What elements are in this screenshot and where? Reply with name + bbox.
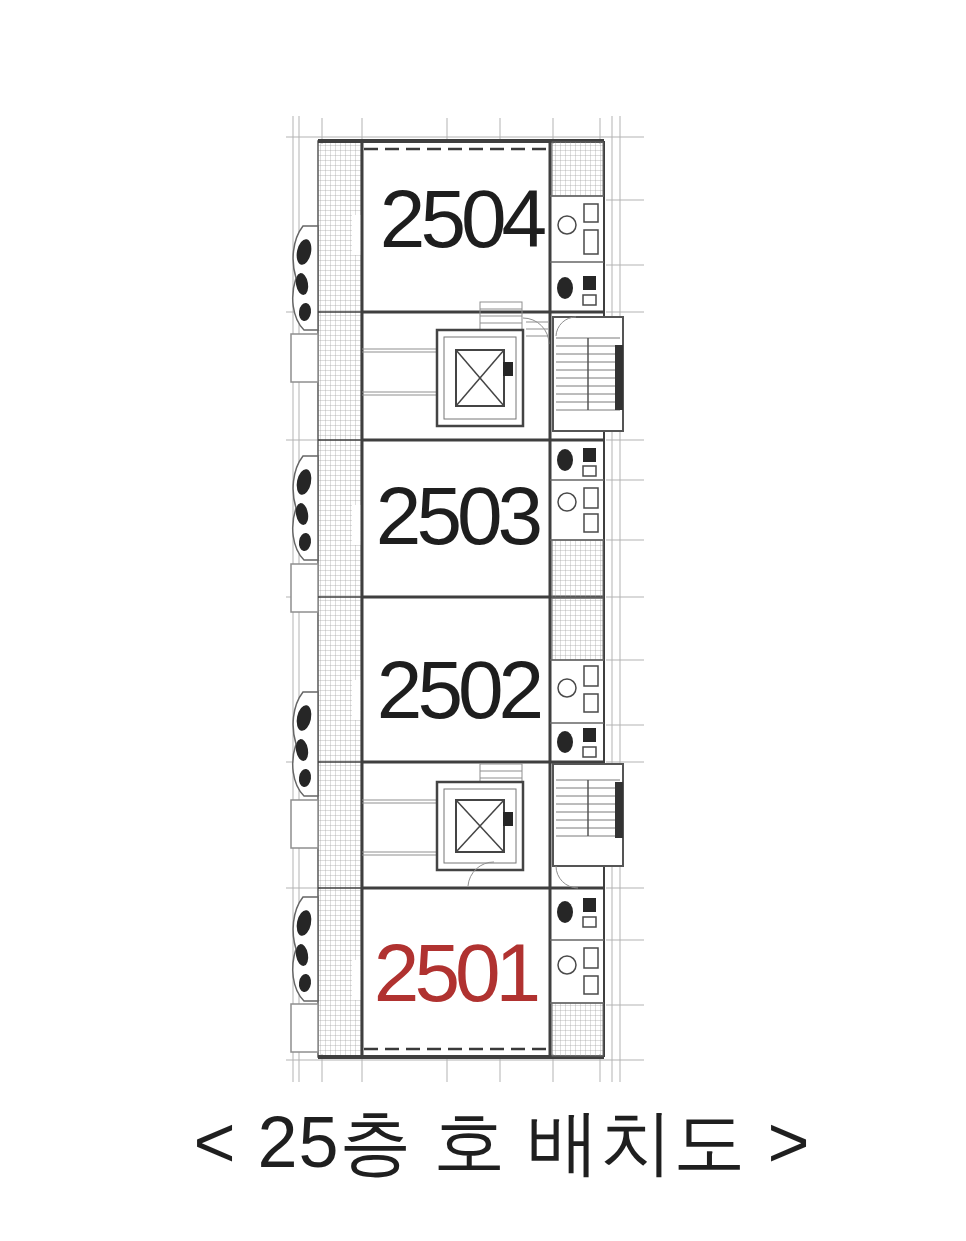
elevator-core-lower bbox=[362, 764, 523, 886]
balcony-bump bbox=[291, 692, 318, 848]
stairwell-upper bbox=[553, 317, 623, 431]
slab-hatch bbox=[552, 142, 603, 196]
sink-icon bbox=[558, 679, 576, 697]
balcony-bump bbox=[291, 456, 318, 612]
slab-hatch bbox=[552, 540, 603, 597]
slab-hatch bbox=[552, 1003, 603, 1056]
toilet-icon bbox=[557, 731, 573, 753]
toilet-icon bbox=[557, 449, 573, 471]
balcony-bumps bbox=[291, 226, 318, 1052]
slab-hatch bbox=[552, 598, 603, 660]
sink-icon bbox=[558, 956, 576, 974]
sink-icon bbox=[558, 216, 576, 234]
balcony-bump bbox=[291, 897, 318, 1052]
floor-caption: < 25층 호 배치도 > bbox=[193, 1106, 810, 1178]
service-strip-right bbox=[550, 142, 604, 1056]
unit-label-2504: 2504 bbox=[380, 178, 542, 260]
unit-rooms bbox=[363, 142, 549, 1056]
toilet-icon bbox=[557, 277, 573, 299]
unit-label-2503: 2503 bbox=[376, 475, 538, 557]
balcony-bump bbox=[291, 226, 318, 382]
floorplan-page: 2504 2503 2502 2501 < 25층 호 배치도 > bbox=[0, 0, 966, 1241]
toilet-icon bbox=[557, 901, 573, 923]
elevator-icon bbox=[437, 330, 523, 426]
unit-label-2501-highlighted: 2501 bbox=[374, 932, 536, 1014]
sink-icon bbox=[558, 493, 576, 511]
left-corridor-hatch bbox=[318, 141, 363, 1057]
elevator-icon bbox=[437, 782, 523, 870]
elevator-core-upper bbox=[362, 302, 549, 426]
unit-label-2502: 2502 bbox=[377, 649, 539, 731]
